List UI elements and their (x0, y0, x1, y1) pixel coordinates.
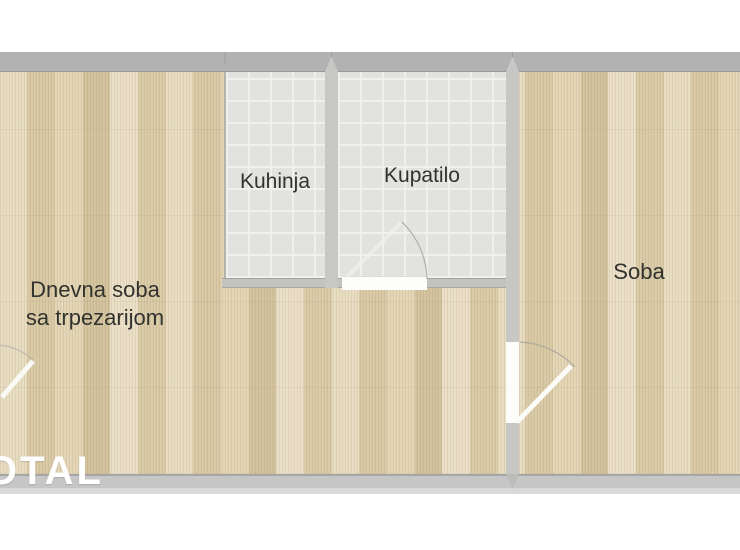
wall-top (0, 52, 740, 72)
watermark-text: OTAL (0, 451, 104, 491)
wall-bedroom-south (506, 423, 519, 474)
living-room-label-line1: Dnevna soba (26, 276, 164, 304)
kitchen-living-boundary (224, 72, 226, 278)
living-room-label: Dnevna soba sa trpezarijom (26, 276, 164, 332)
wall-bottom (0, 474, 740, 494)
bedroom-door-opening (506, 342, 519, 423)
bathroom-door-sill (342, 276, 427, 290)
bathroom-label: Kupatilo (384, 164, 460, 188)
wall-bedroom-north (506, 56, 519, 342)
floor-plan: Kuhinja Kupatilo Soba Dnevna soba sa trp… (0, 0, 740, 550)
kitchen-label: Kuhinja (240, 170, 310, 194)
living-room-label-line2: sa trpezarijom (26, 304, 164, 332)
bedroom-label: Soba (613, 259, 664, 285)
wall-kitchen-bathroom (325, 56, 338, 288)
